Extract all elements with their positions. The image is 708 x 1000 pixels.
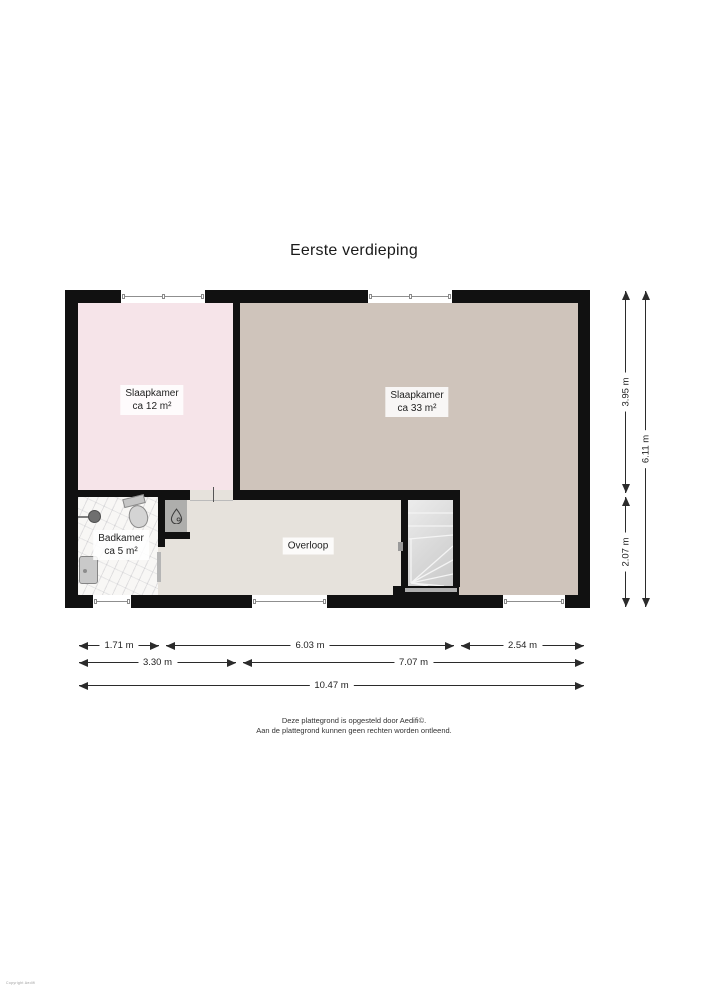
dimension-2-54: 2.54 m (461, 645, 584, 646)
dimension-7-07: 7.07 m (243, 662, 584, 663)
floorplan-page: Eerste verdieping (0, 0, 708, 1000)
watermark: Copyright Aedifi (6, 981, 35, 985)
window-bottom-right (503, 595, 565, 608)
dimension-2-07: 2.07 m (625, 497, 626, 607)
stair-landing-strip (405, 588, 457, 592)
toilet-bowl (126, 503, 150, 530)
page-title: Eerste verdieping (0, 242, 708, 260)
boiler-droplet-icon (170, 508, 183, 524)
dimension-3-95: 3.95 m (625, 291, 626, 493)
staircase (408, 500, 453, 586)
window-bottom-middle (252, 595, 327, 608)
label-bedroom1: Slaapkamer ca 12 m² (120, 385, 183, 415)
boiler-closet (165, 500, 187, 532)
bathroom-wall (158, 497, 165, 547)
closet-wall (163, 532, 190, 539)
dimension-6-03: 6.03 m (166, 645, 454, 646)
room-name: Slaapkamer (125, 388, 178, 399)
room-area: ca 5 m² (104, 546, 137, 557)
label-bathroom: Badkamer ca 5 m² (93, 530, 149, 560)
window-top-right (368, 290, 452, 303)
bedroom1-door-opening (190, 490, 233, 501)
window-top-left (121, 290, 205, 303)
stair-treads-icon (408, 500, 453, 586)
room-area: ca 33 m² (398, 403, 437, 414)
label-landing: Overloop (283, 538, 334, 555)
stair-door (398, 542, 403, 551)
room-name: Slaapkamer (390, 390, 443, 401)
dimension-3-30: 3.30 m (79, 662, 236, 663)
footer-disclaimer: Deze plattegrond is opgesteld door Aedif… (0, 716, 708, 736)
footer-line1: Deze plattegrond is opgesteld door Aedif… (0, 716, 708, 726)
label-bedroom2: Slaapkamer ca 33 m² (385, 387, 448, 417)
window-bottom-left (93, 595, 131, 608)
footer-line2: Aan de plattegrond kunnen geen rechten w… (0, 726, 708, 736)
room-name: Overloop (288, 541, 329, 552)
dimension-6-11: 6.11 m (645, 291, 646, 607)
floor-plan: Slaapkamer ca 12 m² Slaapkamer ca 33 m² … (65, 290, 590, 608)
interior-wall (233, 490, 460, 500)
room-area: ca 12 m² (133, 401, 172, 412)
stair-wall-right (453, 500, 460, 587)
bathroom-door (157, 552, 161, 582)
dimension-1-71: 1.71 m (79, 645, 159, 646)
room-name: Badkamer (98, 533, 144, 544)
door-jamb (213, 487, 214, 502)
shower-head (88, 510, 101, 523)
dimension-10-47: 10.47 m (79, 685, 584, 686)
washbasin (79, 556, 98, 584)
